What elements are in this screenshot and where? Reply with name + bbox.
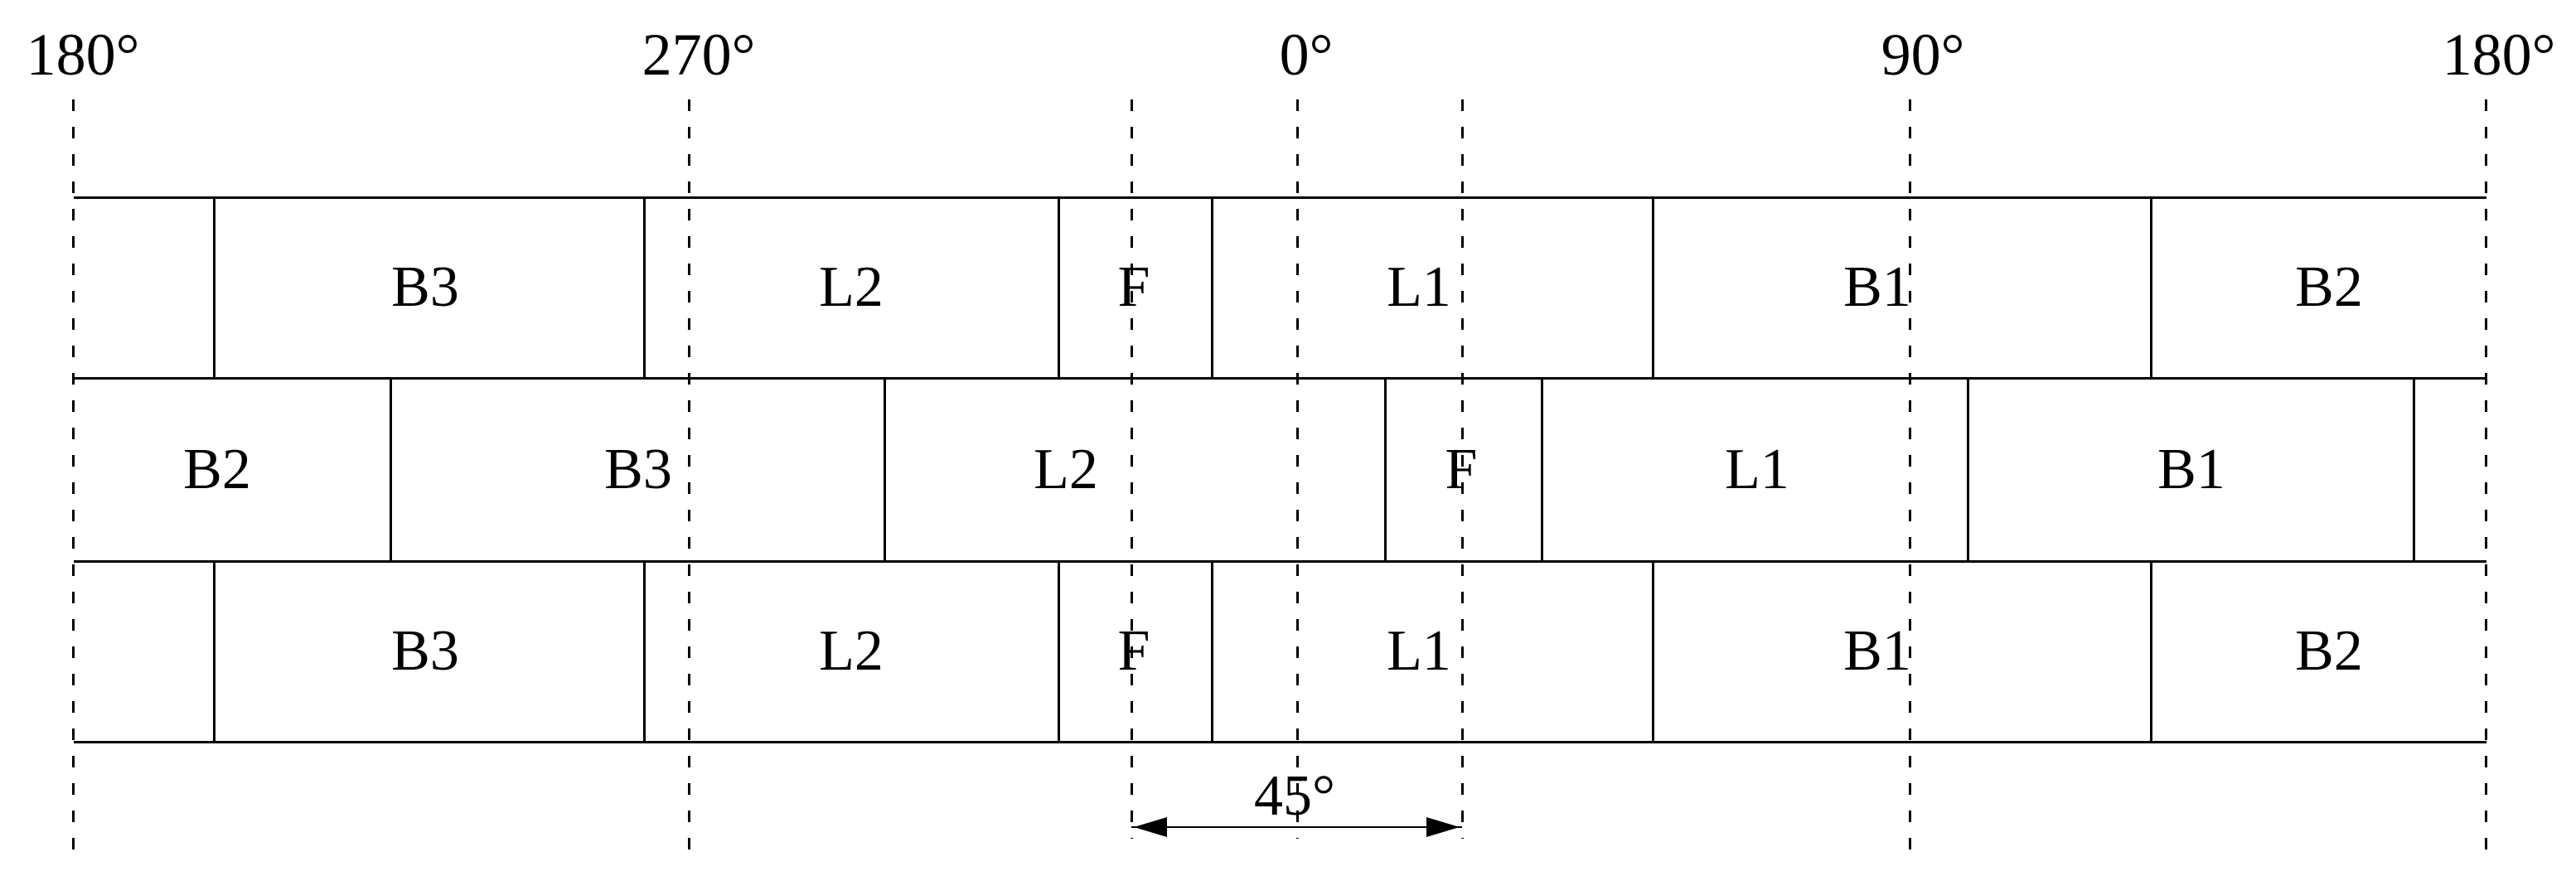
segment-divider-row-bottom-5 [2150,561,2152,742]
angle-label-tick-180-right: 180° [2443,25,2556,85]
block-label-row-bottom-l1: L1 [1387,622,1451,680]
dimension-label: 45° [1254,767,1335,825]
block-label-row-middle-b3: B3 [604,441,672,499]
segment-divider-row-middle-0 [390,378,392,561]
block-label-row-top-b3: B3 [391,259,459,317]
segment-divider-row-bottom-2 [1058,561,1060,742]
block-label-row-middle-b1: B1 [2157,441,2225,499]
block-label-row-bottom-f: F [1118,622,1150,680]
dimension-arrowhead-right [1426,817,1460,837]
segment-divider-row-bottom-0 [213,561,215,742]
segment-divider-row-top-4 [1652,197,1654,378]
dashed-gridline-tick-90 [1909,99,1911,862]
dashed-gridline-tick-0 [1296,99,1299,839]
block-label-row-middle-f: F [1445,441,1478,499]
dashed-gridline-tick-180-right [2485,99,2487,862]
band-horizontal-line-1 [74,377,2486,380]
segment-divider-row-bottom-4 [1652,561,1654,742]
segment-divider-row-top-0 [213,197,215,378]
dimension-arrowhead-left [1134,817,1167,837]
band-horizontal-line-0 [74,196,2486,199]
dashed-gridline-tick-270 [688,99,690,862]
block-label-row-top-l1: L1 [1387,259,1451,317]
block-label-row-bottom-l2: L2 [819,622,884,680]
segment-divider-row-middle-2 [1384,378,1387,561]
segment-divider-row-middle-1 [884,378,886,561]
segment-divider-row-top-5 [2150,197,2152,378]
angle-label-tick-180-left: 180° [27,25,140,85]
segment-divider-row-middle-3 [1541,378,1543,561]
block-label-row-top-b2: B2 [2295,259,2363,317]
angle-label-tick-270: 270° [642,25,756,85]
block-label-row-middle-b2: B2 [183,441,251,499]
angle-label-tick-0: 0° [1280,25,1334,85]
block-label-row-bottom-b3: B3 [391,622,459,680]
segment-divider-row-top-1 [643,197,646,378]
segment-divider-row-top-2 [1058,197,1060,378]
block-label-row-top-f: F [1118,259,1150,317]
dashed-gridline-dash-minus-22-5 [1131,99,1133,839]
block-label-row-middle-l2: L2 [1034,441,1098,499]
block-label-row-top-l2: L2 [819,259,884,317]
band-horizontal-line-2 [74,560,2486,563]
segment-divider-row-bottom-1 [643,561,646,742]
segment-divider-row-top-3 [1211,197,1213,378]
angle-label-tick-90: 90° [1881,25,1965,85]
block-label-row-top-b1: B1 [1843,259,1911,317]
segment-divider-row-middle-4 [1967,378,1969,561]
segment-divider-row-middle-5 [2413,378,2415,561]
block-label-row-bottom-b1: B1 [1843,622,1911,680]
dashed-gridline-tick-180-left [72,99,75,862]
block-label-row-bottom-b2: B2 [2295,622,2363,680]
segment-divider-row-bottom-3 [1211,561,1213,742]
block-label-row-middle-l1: L1 [1725,441,1789,499]
timing-diagram-canvas: 180°270°0°90°180°B3L2FL1B1B2B2B3L2FL1B1B… [0,0,2576,876]
band-horizontal-line-3 [74,741,2486,743]
